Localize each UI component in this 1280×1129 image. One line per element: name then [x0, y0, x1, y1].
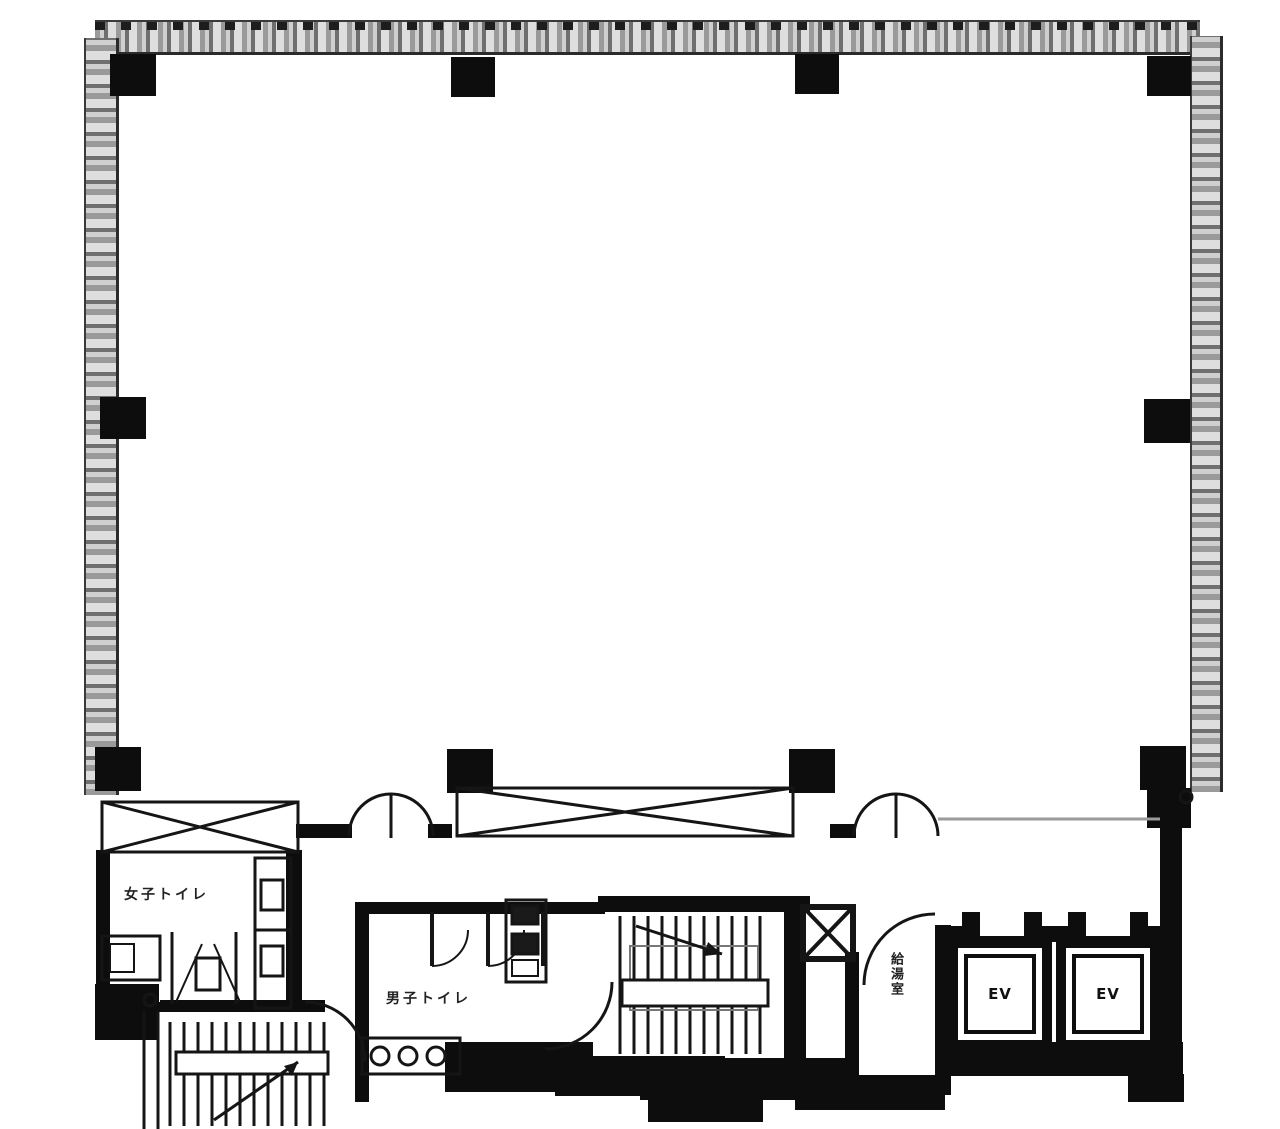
double-door-east [854, 794, 938, 838]
double-door-west [349, 794, 433, 838]
door-closer-symbol [1180, 791, 1192, 803]
plan-linework [0, 0, 1280, 1129]
mens-toilet-label: 男子トイレ [386, 988, 471, 1008]
door-swing-mens [545, 982, 612, 1049]
floor-plan-page: EV EV [0, 0, 1280, 1129]
stair-lower-left [144, 1012, 328, 1129]
womens-toilet-label: 女子トイレ [124, 884, 209, 904]
x-braced-panel-center [457, 788, 793, 836]
stair-main [620, 916, 768, 1054]
x-braced-panel-left [102, 802, 298, 852]
womens-toilet-fixtures [102, 858, 291, 1008]
pipe-shaft [803, 907, 853, 959]
mens-toilet-fixtures [362, 900, 612, 1074]
kitchenette-label: 給湯室 [886, 952, 905, 1062]
